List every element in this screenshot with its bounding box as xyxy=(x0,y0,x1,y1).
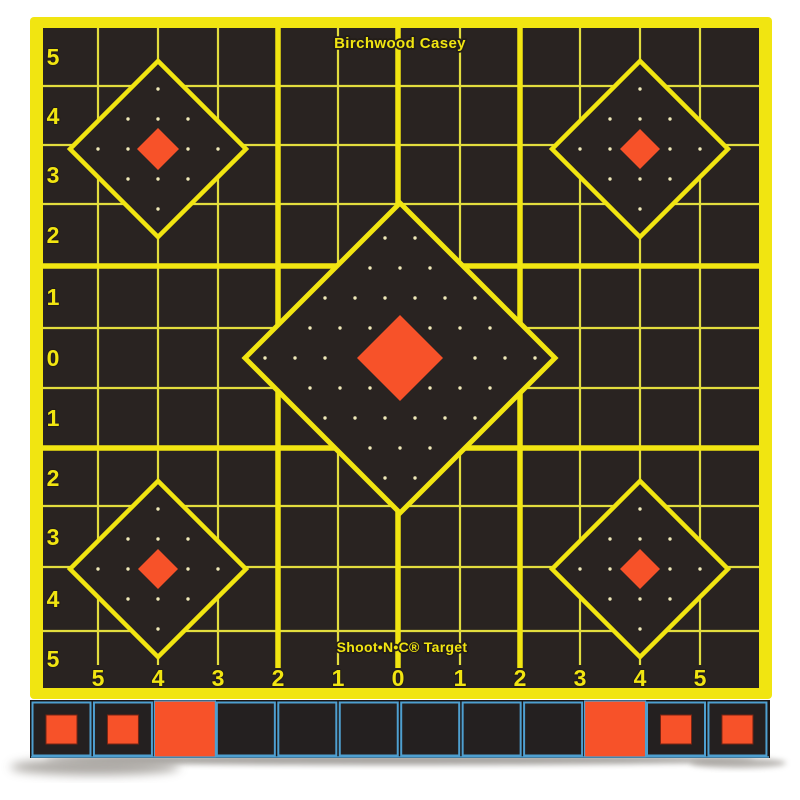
aim-dot xyxy=(413,416,416,419)
aim-dot xyxy=(608,177,611,180)
curl-shadow-right xyxy=(690,758,786,768)
aim-dot xyxy=(608,567,611,570)
aim-dot xyxy=(156,117,159,120)
aim-dot xyxy=(488,386,491,389)
paster-inset-orange xyxy=(722,715,753,744)
aim-dot xyxy=(428,326,431,329)
aim-dot xyxy=(443,416,446,419)
aim-dot xyxy=(668,177,671,180)
paster-inset-orange xyxy=(661,715,692,744)
col-label: 2 xyxy=(514,665,527,691)
aim-dot xyxy=(156,537,159,540)
row-label: 2 xyxy=(47,222,60,248)
aim-dot xyxy=(698,147,701,150)
col-label: 2 xyxy=(272,665,285,691)
aim-dot xyxy=(368,266,371,269)
aim-dot xyxy=(473,296,476,299)
aim-dot xyxy=(638,537,641,540)
aim-dot xyxy=(443,296,446,299)
aim-dot xyxy=(126,537,129,540)
aim-dot xyxy=(533,356,536,359)
aim-dot xyxy=(338,326,341,329)
aim-dot xyxy=(608,147,611,150)
curl-shadow-left xyxy=(10,759,180,775)
aim-dot xyxy=(156,87,159,90)
aim-dot xyxy=(608,117,611,120)
aim-dot xyxy=(473,416,476,419)
row-label: 4 xyxy=(47,586,60,612)
aim-dot xyxy=(413,476,416,479)
aim-dot xyxy=(126,147,129,150)
aim-dot xyxy=(413,296,416,299)
aim-dot xyxy=(368,326,371,329)
col-label: 4 xyxy=(152,665,165,691)
aim-dot xyxy=(398,266,401,269)
paster-inset-orange xyxy=(107,715,138,744)
row-label: 0 xyxy=(47,345,60,371)
col-label: 5 xyxy=(694,665,707,691)
row-label: 3 xyxy=(47,524,60,550)
product-name: Shoot•N•C® Target xyxy=(337,639,468,655)
col-label: 1 xyxy=(332,665,345,691)
page: 5432101234554321012345 Birchwood Casey S… xyxy=(0,0,800,800)
aim-dot xyxy=(186,597,189,600)
col-label: 3 xyxy=(574,665,587,691)
aim-dot xyxy=(368,446,371,449)
aim-dot xyxy=(638,117,641,120)
aim-dot xyxy=(323,416,326,419)
aim-dot xyxy=(668,147,671,150)
aim-dot xyxy=(216,147,219,150)
col-label: 3 xyxy=(212,665,225,691)
col-label: 0 xyxy=(392,665,405,691)
aim-dot xyxy=(458,386,461,389)
row-label: 1 xyxy=(47,405,60,431)
paster-square xyxy=(278,703,336,756)
aim-dot xyxy=(668,567,671,570)
paster-square xyxy=(340,703,398,756)
aim-dot xyxy=(323,356,326,359)
paster-square xyxy=(524,703,582,756)
aim-dot xyxy=(156,207,159,210)
aim-dot xyxy=(638,87,641,90)
aim-dot xyxy=(186,567,189,570)
aim-dot xyxy=(293,356,296,359)
aim-dot xyxy=(698,567,701,570)
aim-dot xyxy=(638,207,641,210)
aim-dot xyxy=(156,177,159,180)
aim-dot xyxy=(668,117,671,120)
aim-dot xyxy=(126,117,129,120)
row-label: 5 xyxy=(47,44,60,70)
paster-square-solid xyxy=(585,701,646,757)
aim-dot xyxy=(263,356,266,359)
aim-dot xyxy=(338,386,341,389)
aim-dot xyxy=(638,597,641,600)
aim-dot xyxy=(578,147,581,150)
paster-strip xyxy=(30,700,770,758)
aim-dot xyxy=(353,296,356,299)
aim-dot xyxy=(428,266,431,269)
aim-dot xyxy=(383,476,386,479)
paster-inset-orange xyxy=(46,715,77,744)
aim-dot xyxy=(126,177,129,180)
row-label: 3 xyxy=(47,162,60,188)
aim-dot xyxy=(638,627,641,630)
aim-dot xyxy=(308,326,311,329)
aim-dot xyxy=(216,567,219,570)
paster-square xyxy=(463,703,521,756)
aim-dot xyxy=(186,147,189,150)
aim-dot xyxy=(156,507,159,510)
target-sheet-svg: 5432101234554321012345 Birchwood Casey S… xyxy=(0,0,800,800)
aim-dot xyxy=(398,446,401,449)
aim-dot xyxy=(668,597,671,600)
aim-dot xyxy=(638,177,641,180)
aim-dot xyxy=(413,236,416,239)
aim-dot xyxy=(608,537,611,540)
row-label: 4 xyxy=(47,103,60,129)
aim-dot xyxy=(186,117,189,120)
aim-dot xyxy=(308,386,311,389)
aim-dot xyxy=(353,416,356,419)
aim-dot xyxy=(488,326,491,329)
paster-square xyxy=(401,703,459,756)
aim-dot xyxy=(186,537,189,540)
aim-dot xyxy=(368,386,371,389)
aim-dot xyxy=(96,567,99,570)
aim-dot xyxy=(186,177,189,180)
aim-dot xyxy=(383,416,386,419)
col-label: 4 xyxy=(634,665,647,691)
aim-dot xyxy=(473,356,476,359)
paster-square-solid xyxy=(154,701,215,757)
aim-dot xyxy=(668,537,671,540)
aim-dot xyxy=(638,507,641,510)
aim-dot xyxy=(428,446,431,449)
aim-dot xyxy=(96,147,99,150)
row-label: 2 xyxy=(47,465,60,491)
col-label: 1 xyxy=(454,665,467,691)
aim-dot xyxy=(383,236,386,239)
aim-dot xyxy=(126,567,129,570)
aim-dot xyxy=(323,296,326,299)
aim-dot xyxy=(503,356,506,359)
row-label: 1 xyxy=(47,284,60,310)
aim-dot xyxy=(126,597,129,600)
aim-dot xyxy=(458,326,461,329)
paster-square xyxy=(217,703,275,756)
col-label: 5 xyxy=(92,665,105,691)
aim-dot xyxy=(156,627,159,630)
aim-dot xyxy=(428,386,431,389)
aim-dot xyxy=(608,597,611,600)
aim-dot xyxy=(578,567,581,570)
brand-title: Birchwood Casey xyxy=(334,35,466,52)
aim-dot xyxy=(383,296,386,299)
aim-dot xyxy=(156,597,159,600)
row-label: 5 xyxy=(47,646,60,672)
